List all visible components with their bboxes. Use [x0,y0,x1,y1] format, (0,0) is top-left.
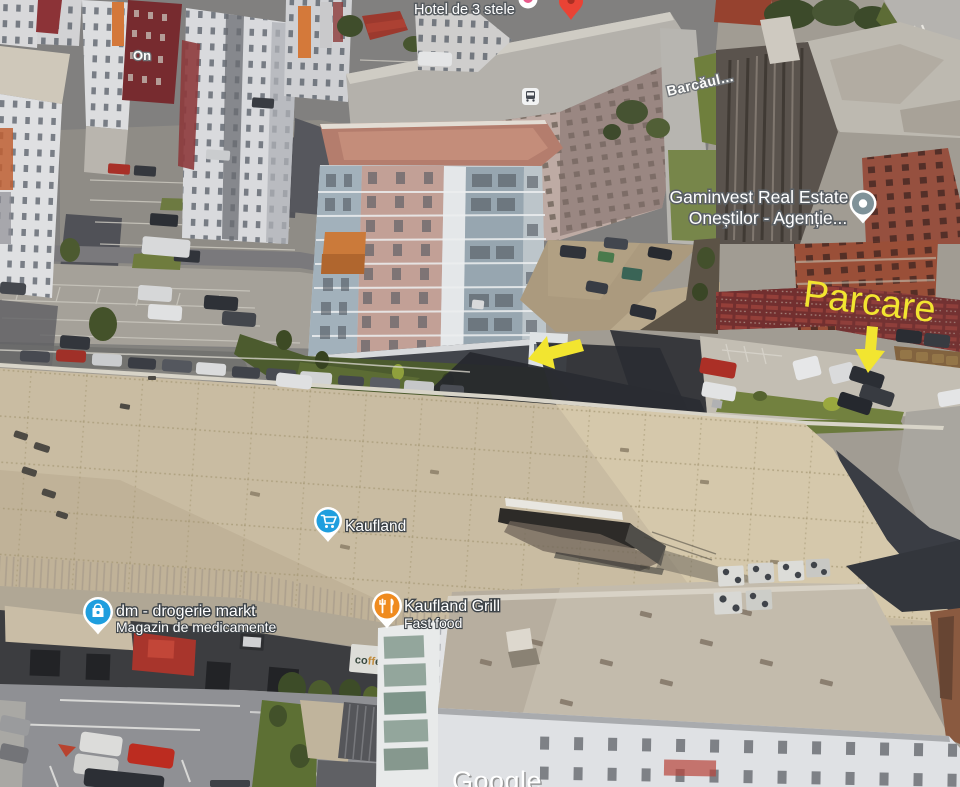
svg-text:On: On [133,48,151,63]
svg-text:Fast food: Fast food [404,615,462,631]
svg-text:Gaminvest Real Estate: Gaminvest Real Estate [670,187,849,207]
svg-text:Oneștilor - Agenție...: Oneștilor - Agenție... [689,208,848,228]
svg-text:Kaufland Grill: Kaufland Grill [404,598,500,615]
svg-text:Google: Google [452,766,542,787]
svg-text:dm - drogerie markt: dm - drogerie markt [116,603,256,620]
svg-text:Magazin de medicamente: Magazin de medicamente [116,619,277,635]
svg-text:Kaufland: Kaufland [345,518,406,535]
svg-text:Hotel de 3 stele: Hotel de 3 stele [414,2,515,18]
